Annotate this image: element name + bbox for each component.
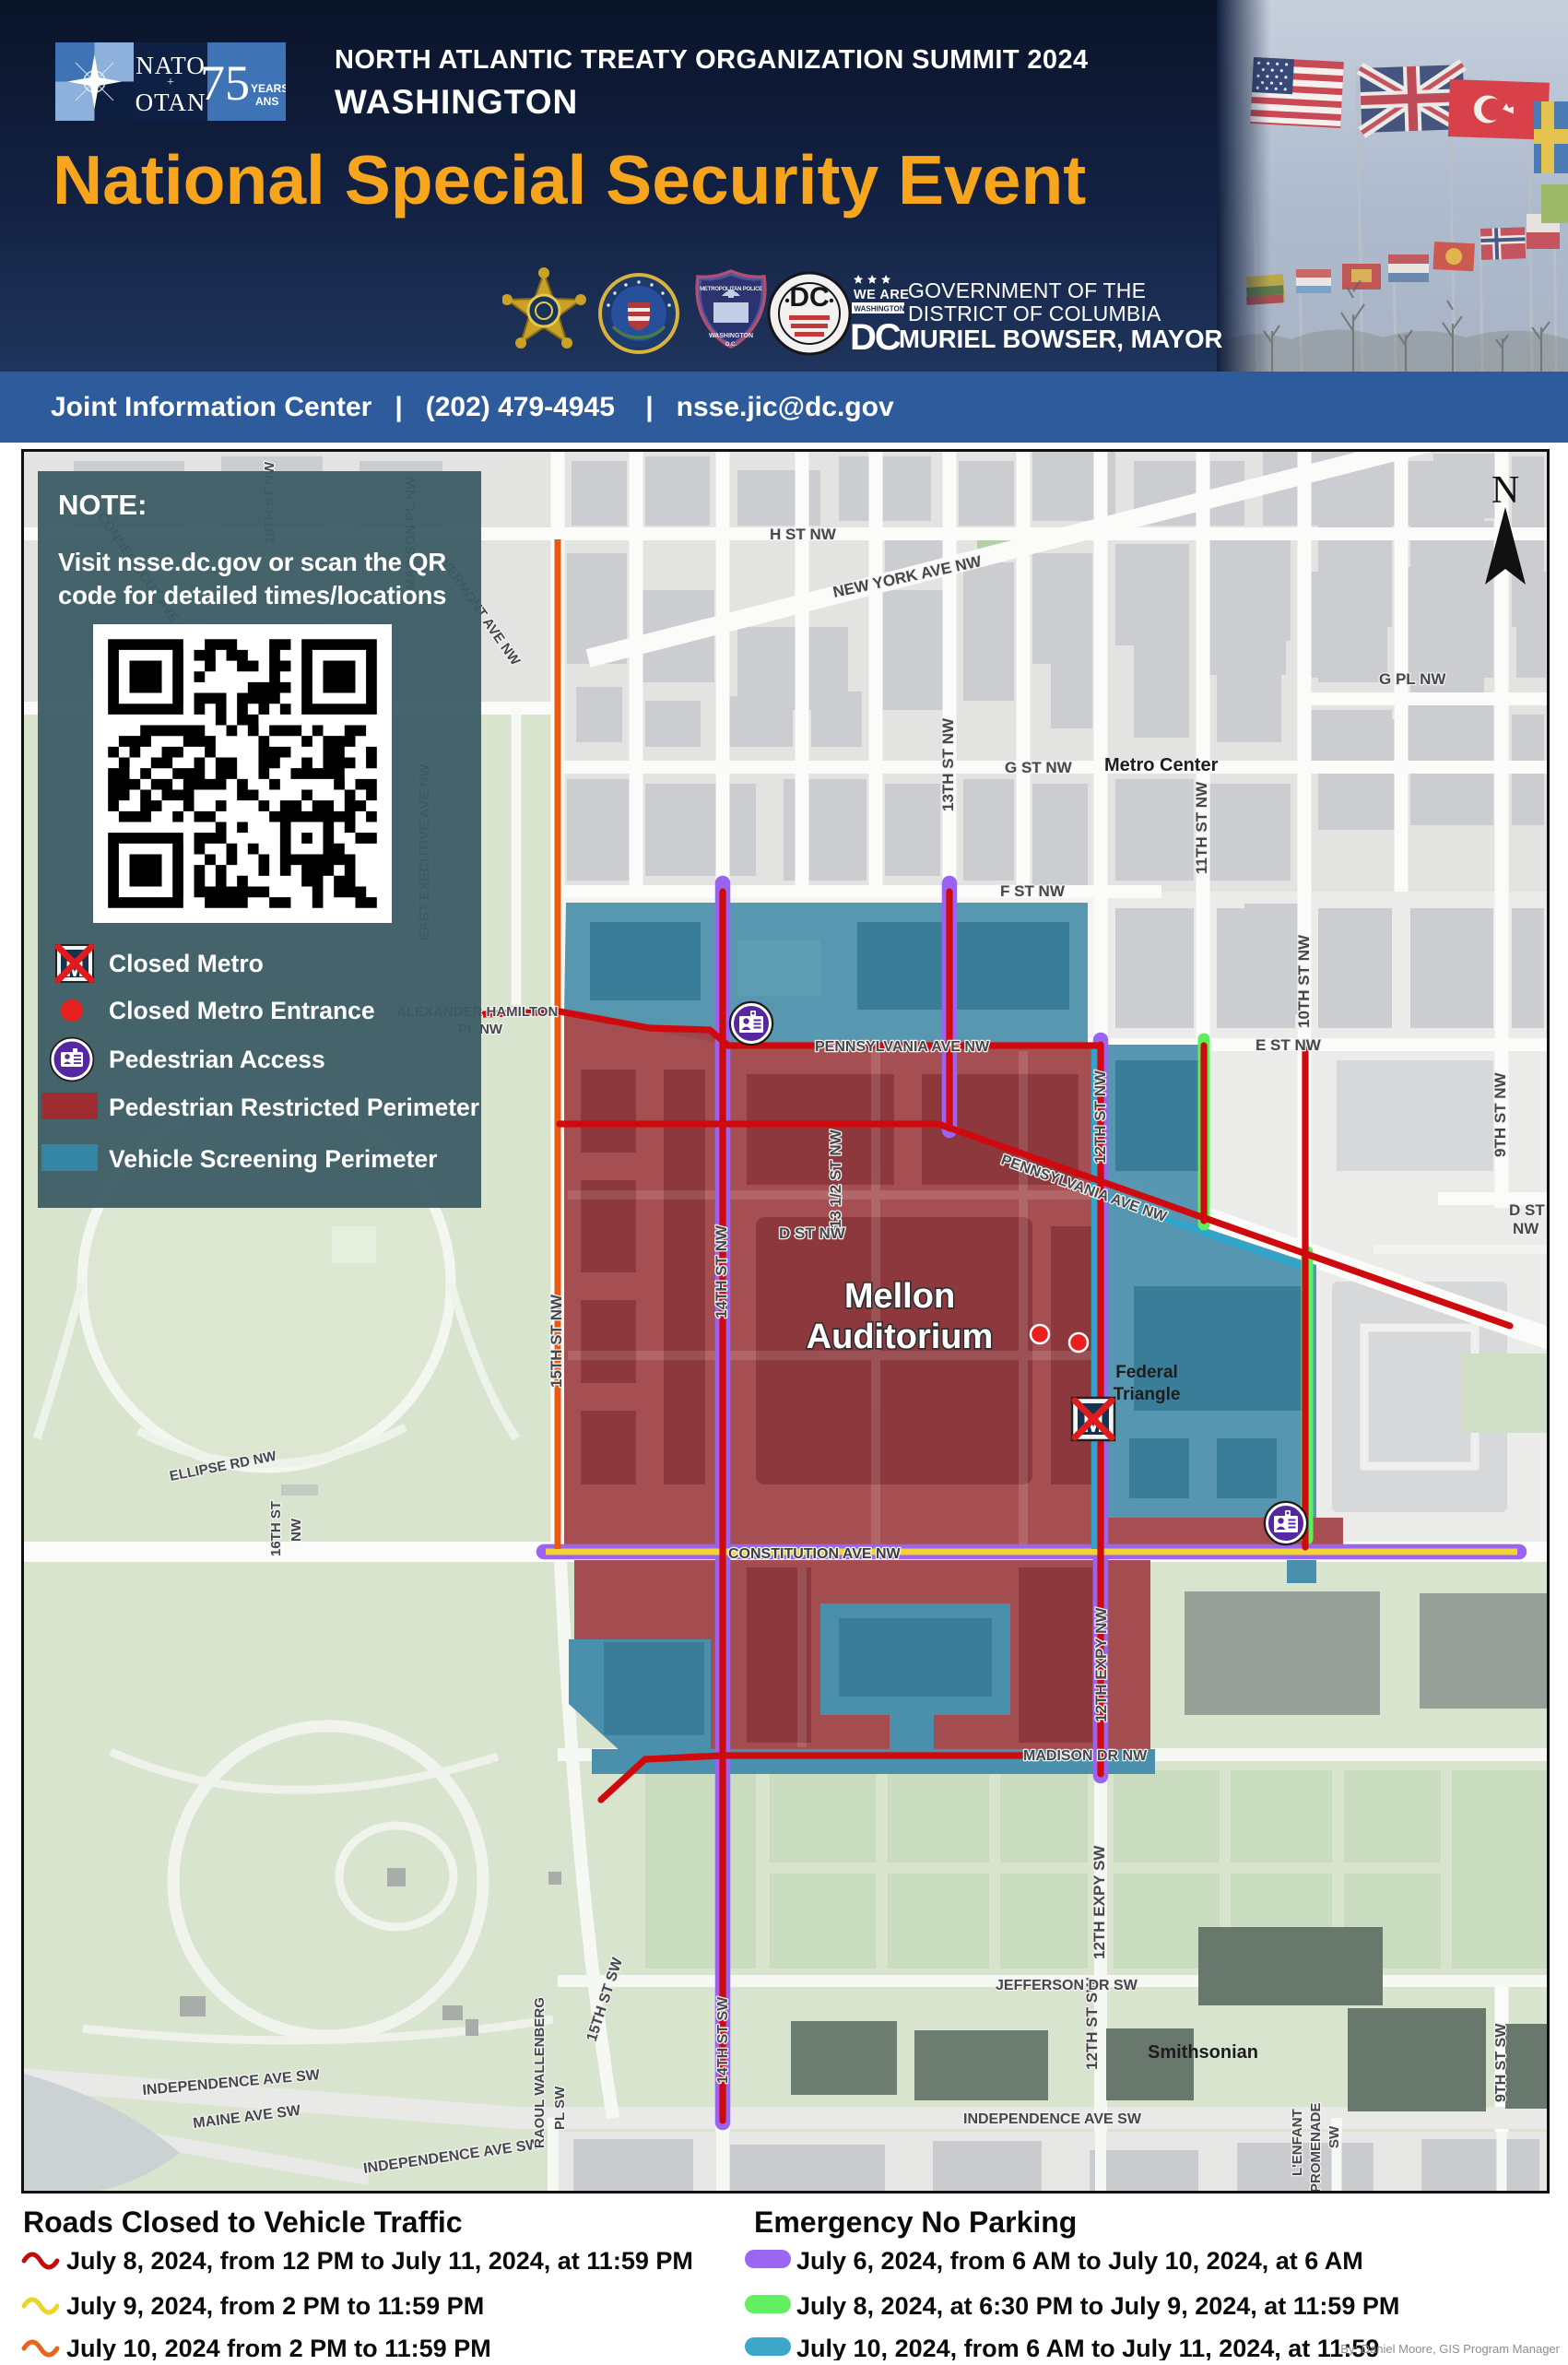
svg-text:13 1/2 ST NW: 13 1/2 ST NW xyxy=(827,1129,844,1228)
svg-text:G PL NW: G PL NW xyxy=(1379,670,1446,688)
svg-text:L'ENFANT: L'ENFANT xyxy=(1290,2109,1305,2176)
svg-text:D.C.: D.C. xyxy=(725,342,737,348)
svg-text:July 9, 2024, from 2 PM to 11:: July 9, 2024, from 2 PM to 11:59 PM xyxy=(66,2292,484,2320)
svg-text:Pedestrian Restricted Perimete: Pedestrian Restricted Perimeter xyxy=(109,1094,479,1121)
svg-text:INDEPENDENCE AVE SW: INDEPENDENCE AVE SW xyxy=(963,2111,1142,2127)
svg-text:Pedestrian Access: Pedestrian Access xyxy=(109,1046,325,1073)
svg-text:OTAN: OTAN xyxy=(136,89,206,116)
svg-text:E ST NW: E ST NW xyxy=(1256,1036,1322,1054)
svg-text:13TH ST NW: 13TH ST NW xyxy=(939,717,957,811)
svg-text:Auditorium: Auditorium xyxy=(807,1318,994,1356)
svg-text:16TH ST: 16TH ST xyxy=(268,1501,284,1556)
svg-text:9TH ST SW: 9TH ST SW xyxy=(1493,2023,1509,2102)
svg-text:14TH ST SW: 14TH ST SW xyxy=(715,1996,731,2084)
svg-text:Closed Metro: Closed Metro xyxy=(109,950,264,977)
svg-text:Closed Metro Entrance: Closed Metro Entrance xyxy=(109,997,375,1024)
svg-text:July 10, 2024, from 6 AM to Ju: July 10, 2024, from 6 AM to July 11, 202… xyxy=(796,2335,1379,2360)
svg-text:PROMENADE: PROMENADE xyxy=(1308,2102,1324,2193)
svg-text:July 6, 2024, from 6 AM to Ju: July 6, 2024, from 6 AM to July 10, 2024… xyxy=(796,2247,1363,2275)
svg-text:Mellon: Mellon xyxy=(844,1277,955,1316)
svg-text:DC: DC xyxy=(789,282,829,313)
svg-text:Smithsonian: Smithsonian xyxy=(1148,2042,1258,2063)
svg-text:WASHINGTON: WASHINGTON xyxy=(855,305,905,313)
svg-text:+: + xyxy=(167,76,174,89)
svg-text:9TH ST NW: 9TH ST NW xyxy=(1491,1071,1509,1157)
svg-text:MURIEL BOWSER, MAYOR: MURIEL BOWSER, MAYOR xyxy=(899,325,1223,353)
svg-text:10TH ST NW: 10TH ST NW xyxy=(1295,934,1313,1028)
svg-text:RAOUL WALLENBERG: RAOUL WALLENBERG xyxy=(532,1997,548,2148)
svg-text:WE ARE: WE ARE xyxy=(854,288,909,302)
svg-text:N: N xyxy=(1491,469,1519,512)
svg-text:12TH EXPY NW: 12TH EXPY NW xyxy=(1092,1607,1110,1722)
svg-text:PENNSYLVANIA AVE NW: PENNSYLVANIA AVE NW xyxy=(815,1039,990,1055)
svg-text:SW: SW xyxy=(1326,2125,1342,2148)
svg-text:Triangle: Triangle xyxy=(1114,1385,1181,1404)
svg-text:WASHINGTON: WASHINGTON xyxy=(709,333,753,339)
svg-text:July 8, 2024, at 6:30 PM to Ju: July 8, 2024, at 6:30 PM to July 9, 2024… xyxy=(796,2292,1399,2320)
svg-text:CONSTITUTION AVE NW: CONSTITUTION AVE NW xyxy=(728,1546,902,1562)
svg-text:YEARS: YEARS xyxy=(251,82,286,95)
svg-text:DISTRICT OF COLUMBIA: DISTRICT OF COLUMBIA xyxy=(908,302,1161,325)
svg-text:July 8, 2024, from 12 PM to Ju: July 8, 2024, from 12 PM to July 11, 202… xyxy=(66,2247,693,2275)
svg-text:G ST NW: G ST NW xyxy=(1005,759,1073,776)
svg-text:NW: NW xyxy=(1513,1220,1539,1237)
svg-text:Vehicle Screening Perimeter: Vehicle Screening Perimeter xyxy=(109,1145,437,1173)
svg-text:JEFFERSON DR SW: JEFFERSON DR SW xyxy=(996,1978,1138,1993)
svg-text:12TH ST NW: 12TH ST NW xyxy=(1091,1070,1109,1164)
svg-text:GOVERNMENT OF THE: GOVERNMENT OF THE xyxy=(908,278,1146,302)
svg-text:H ST NW: H ST NW xyxy=(770,526,837,543)
svg-text:75: 75 xyxy=(200,55,250,111)
svg-text:11TH ST NW: 11TH ST NW xyxy=(1193,781,1210,874)
svg-text:Metro Center: Metro Center xyxy=(1104,755,1219,775)
svg-text:14TH ST NW: 14TH ST NW xyxy=(713,1224,730,1318)
svg-text:ANS: ANS xyxy=(255,95,278,108)
svg-text:12TH EXPY SW: 12TH EXPY SW xyxy=(1091,1845,1108,1959)
svg-text:NW: NW xyxy=(289,1518,304,1542)
svg-text:MADISON DR NW: MADISON DR NW xyxy=(1023,1748,1148,1764)
svg-text:July 10, 2024 from 2 PM to 11:: July 10, 2024 from 2 PM to 11:59 PM xyxy=(66,2335,491,2360)
svg-text:DC: DC xyxy=(850,317,901,358)
svg-text:Federal: Federal xyxy=(1115,1363,1178,1382)
svg-text:15TH ST NW: 15TH ST NW xyxy=(548,1294,565,1388)
svg-text:F ST NW: F ST NW xyxy=(1000,882,1066,900)
svg-text:D ST: D ST xyxy=(1509,1201,1545,1219)
svg-text:PL SW: PL SW xyxy=(552,2086,568,2130)
